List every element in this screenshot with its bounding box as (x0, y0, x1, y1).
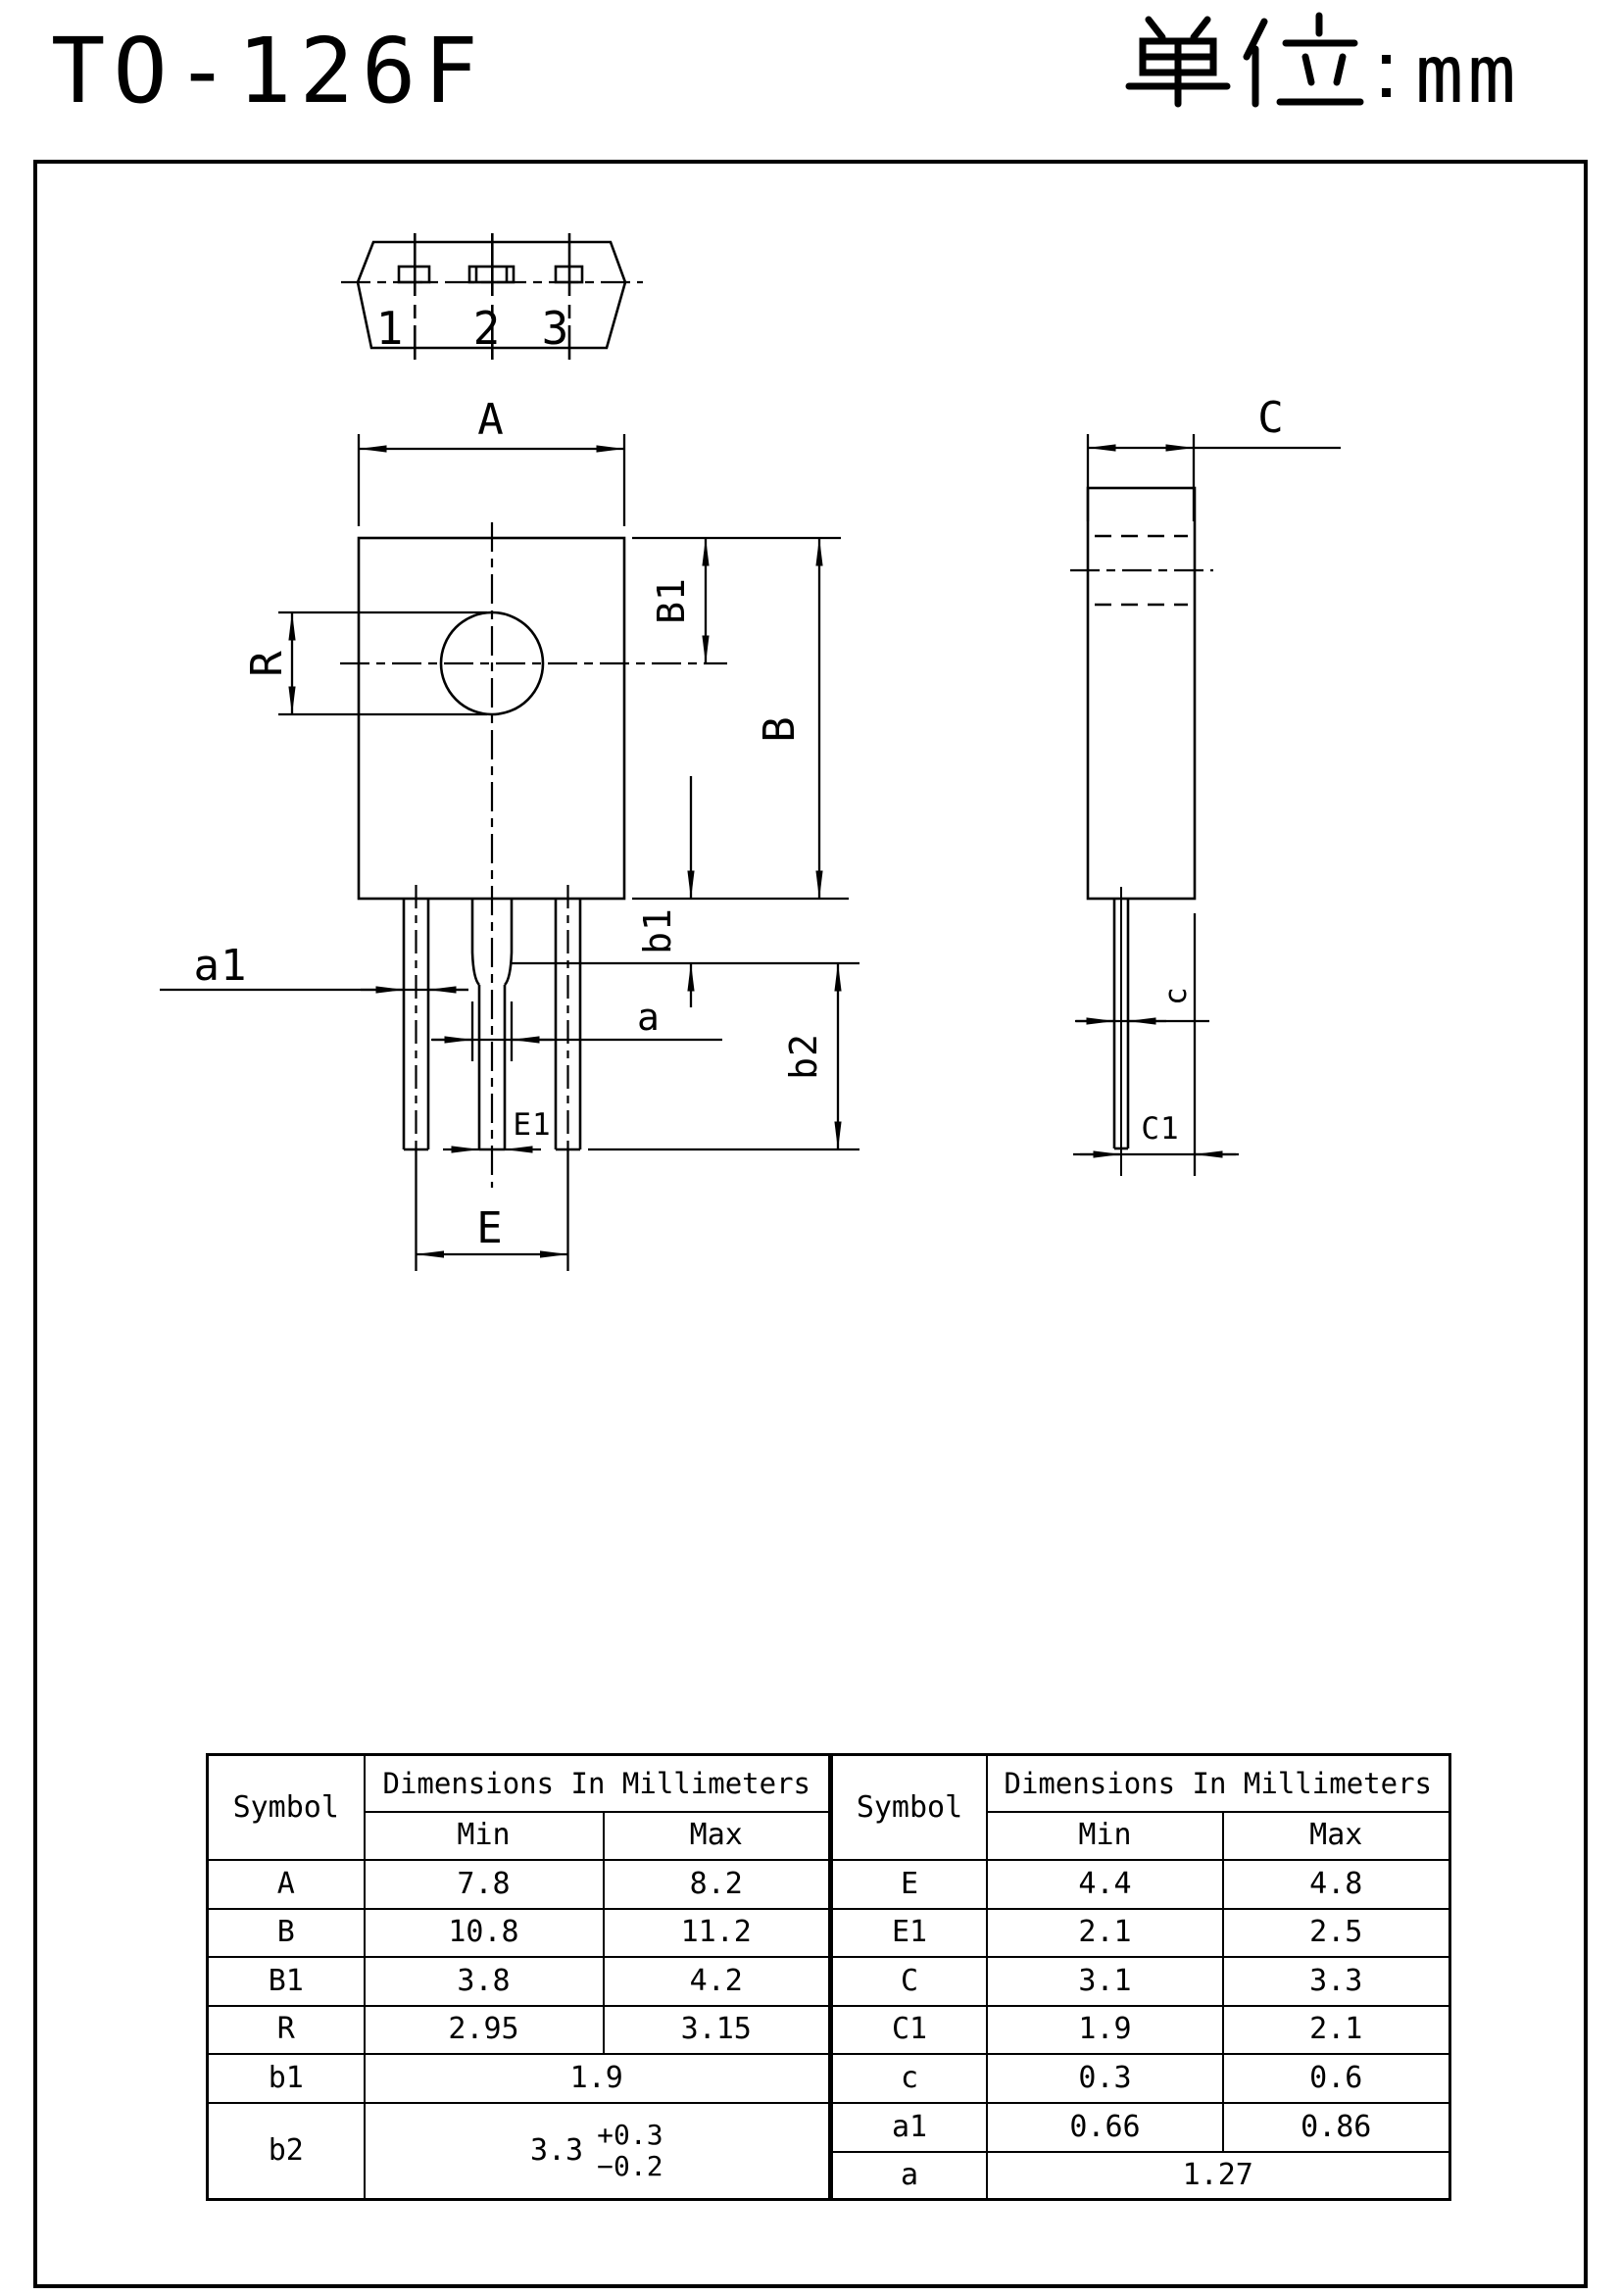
max-cell: 4.8 (1223, 1860, 1449, 1909)
table-row: b1 1.9 (208, 2054, 830, 2103)
dim-label-b2: b2 (782, 1033, 825, 1080)
col-header-min: Min (365, 1812, 604, 1860)
table-row: A 7.8 8.2 (208, 1860, 830, 1909)
symbol-cell: a1 (832, 2103, 987, 2152)
max-cell: 2.5 (1223, 1909, 1449, 1957)
min-cell: 1.9 (987, 2006, 1223, 2054)
col-header-group: Dimensions In Millimeters (987, 1755, 1449, 1812)
dim-label-E: E (476, 1203, 504, 1253)
col-header-symbol: Symbol (832, 1755, 987, 1860)
tolerance-plus: +0.3 (597, 2120, 663, 2151)
dim-label-C: C (1257, 393, 1285, 443)
table-row: C 3.1 3.3 (832, 1957, 1449, 2006)
dim-label-B: B (755, 715, 805, 743)
pin-number-3: 3 (542, 302, 570, 355)
min-cell: 2.95 (365, 2006, 604, 2054)
dimension-table-left: Symbol Dimensions In Millimeters Min Max… (206, 1753, 831, 2201)
symbol-cell: B1 (208, 1957, 365, 2006)
dimension-table-right: Symbol Dimensions In Millimeters Min Max… (831, 1753, 1451, 2201)
table-row: c 0.3 0.6 (832, 2054, 1449, 2103)
symbol-cell: b2 (208, 2103, 365, 2200)
min-cell: 3.8 (365, 1957, 604, 2006)
dimension-table: Symbol Dimensions In Millimeters Min Max… (206, 1753, 1446, 2198)
merged-value-cell: 1.27 (987, 2152, 1449, 2200)
min-cell: 10.8 (365, 1909, 604, 1957)
symbol-cell: b1 (208, 2054, 365, 2103)
min-cell: 7.8 (365, 1860, 604, 1909)
table-row: E1 2.1 2.5 (832, 1909, 1449, 1957)
symbol-cell: C (832, 1957, 987, 2006)
col-header-symbol: Symbol (208, 1755, 365, 1860)
side-view (1070, 434, 1341, 1176)
table-row: B1 3.8 4.2 (208, 1957, 830, 2006)
col-header-group: Dimensions In Millimeters (365, 1755, 830, 1812)
max-cell: 3.15 (604, 2006, 830, 2054)
min-cell: 4.4 (987, 1860, 1223, 1909)
dim-label-a1: a1 (194, 941, 248, 991)
table-row: b2 3.3 +0.3 −0.2 (208, 2103, 830, 2200)
symbol-cell: A (208, 1860, 365, 1909)
merged-tolerance-cell: 3.3 +0.3 −0.2 (365, 2103, 830, 2200)
symbol-cell: C1 (832, 2006, 987, 2054)
min-cell: 0.3 (987, 2054, 1223, 2103)
table-row: E 4.4 4.8 (832, 1860, 1449, 1909)
dim-label-A: A (477, 395, 505, 445)
max-cell: 0.6 (1223, 2054, 1449, 2103)
min-cell: 3.1 (987, 1957, 1223, 2006)
max-cell: 11.2 (604, 1909, 830, 1957)
min-cell: 0.66 (987, 2103, 1223, 2152)
symbol-cell: E (832, 1860, 987, 1909)
dim-label-a: a (637, 996, 661, 1039)
page-title: TO-126F (51, 19, 486, 123)
front-dimensions (160, 434, 859, 1271)
table-row: R 2.95 3.15 (208, 2006, 830, 2054)
col-header-max: Max (604, 1812, 830, 1860)
table-row: B 10.8 11.2 (208, 1909, 830, 1957)
col-header-max: Max (1223, 1812, 1449, 1860)
table-row: a 1.27 (832, 2152, 1449, 2200)
tolerance-base-value: 3.3 (530, 2135, 583, 2167)
dim-label-B1: B1 (650, 577, 693, 624)
dim-label-R: R (242, 650, 292, 677)
min-cell: 2.1 (987, 1909, 1223, 1957)
front-view (160, 434, 859, 1271)
max-cell: 2.1 (1223, 2006, 1449, 2054)
col-header-min: Min (987, 1812, 1223, 1860)
dim-label-b1: b1 (636, 907, 679, 954)
dim-label-c: c (1158, 986, 1194, 1005)
symbol-cell: a (832, 2152, 987, 2200)
tolerance-minus: −0.2 (597, 2151, 663, 2182)
dim-label-E1: E1 (513, 1107, 551, 1143)
datasheet-page: TO-126F mm (0, 0, 1620, 2292)
max-cell: 0.86 (1223, 2103, 1449, 2152)
pin-number-1: 1 (376, 302, 405, 355)
max-cell: 4.2 (604, 1957, 830, 2006)
side-body (1088, 488, 1195, 899)
unit-label-cjk-icon (1129, 16, 1391, 104)
unit-mm-text: mm (1415, 28, 1520, 122)
symbol-cell: c (832, 2054, 987, 2103)
pin-number-2: 2 (473, 302, 502, 355)
table-row: C1 1.9 2.1 (832, 2006, 1449, 2054)
symbol-cell: R (208, 2006, 365, 2054)
table-row: a1 0.66 0.86 (832, 2103, 1449, 2152)
merged-value-cell: 1.9 (365, 2054, 830, 2103)
symbol-cell: B (208, 1909, 365, 1957)
symbol-cell: E1 (832, 1909, 987, 1957)
max-cell: 8.2 (604, 1860, 830, 1909)
max-cell: 3.3 (1223, 1957, 1449, 2006)
dim-label-C1: C1 (1141, 1111, 1179, 1147)
